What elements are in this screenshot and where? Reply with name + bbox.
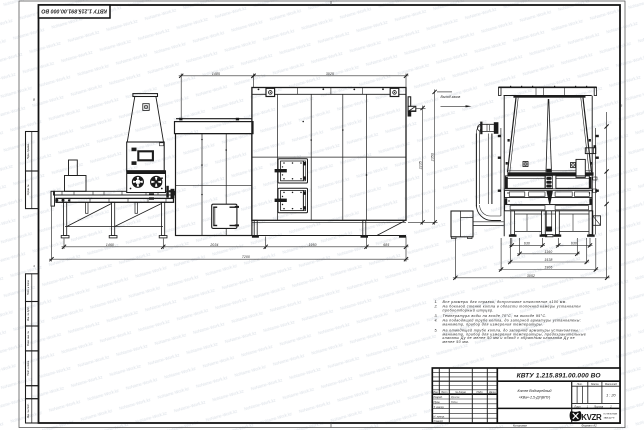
svg-text:пробоотборный штуцер.: пробоотборный штуцер. <box>443 308 494 312</box>
svg-text:7200: 7200 <box>242 255 250 259</box>
svg-text:Котел Водогрейный: Котел Водогрейный <box>518 389 552 393</box>
svg-text:Лит.: Лит. <box>576 383 583 386</box>
svg-text:1 : 20: 1 : 20 <box>606 393 616 397</box>
svg-text:ЗАВОД РФ: ЗАВОД РФ <box>604 416 615 419</box>
svg-text:Лист: Лист <box>440 391 447 394</box>
svg-text:Выход газов: Выход газов <box>441 95 461 99</box>
svg-text:3052: 3052 <box>527 274 535 278</box>
svg-text:КВТУ 1.215.891.00.000 ВО: КВТУ 1.215.891.00.000 ВО <box>517 373 602 380</box>
svg-text:1460: 1460 <box>106 243 114 247</box>
svg-text:4: 4 <box>33 264 35 268</box>
svg-text:Н. контр.: Н. контр. <box>434 415 446 418</box>
svg-text:Инв. № подл.: Инв. № подл. <box>27 403 30 418</box>
svg-text:1160: 1160 <box>544 250 552 254</box>
svg-text:Масштаб: Масштаб <box>605 383 617 386</box>
svg-text:«КВа»-2,5-ДУ(ВПУ): «КВа»-2,5-ДУ(ВПУ) <box>519 396 551 400</box>
svg-text:2: 2 <box>609 405 612 408</box>
svg-text:Юдин: Юдин <box>451 401 458 404</box>
svg-text:2034: 2034 <box>209 243 218 247</box>
svg-text:630: 630 <box>571 241 577 245</box>
svg-text:Инв. № дубл.: Инв. № дубл. <box>27 306 30 321</box>
svg-text:менее 50 мм.: менее 50 мм. <box>443 340 470 344</box>
svg-text:Пров.: Пров. <box>434 401 441 404</box>
svg-text:манометр, прибор для измерения: манометр, прибор для измерения температу… <box>443 322 544 326</box>
svg-text:685: 685 <box>383 243 389 247</box>
svg-text:КОТЕЛЬНЫЙ: КОТЕЛЬНЫЙ <box>604 413 618 416</box>
svg-text:Масса: Масса <box>591 383 599 386</box>
svg-text:Фролов: Фролов <box>451 396 460 399</box>
svg-text:Разраб.: Разраб. <box>434 396 443 399</box>
svg-text:Утверд.: Утверд. <box>434 420 444 423</box>
svg-text:5.: 5. <box>435 328 438 332</box>
svg-text:Подп. и дата: Подп. и дата <box>27 360 30 376</box>
svg-text:2235: 2235 <box>419 161 423 170</box>
svg-text:1906: 1906 <box>544 266 552 270</box>
svg-text:3025: 3025 <box>326 72 334 76</box>
svg-text:1485: 1485 <box>212 72 220 76</box>
svg-text:Перв. примен.: Перв. примен. <box>27 143 30 159</box>
svg-text:Подп.: Подп. <box>476 391 483 394</box>
svg-text:KVZR: KVZR <box>581 413 602 422</box>
svg-text:Лист: Лист <box>573 405 580 408</box>
svg-text:630: 630 <box>524 241 530 245</box>
svg-text:Взам. инв. №: Взам. инв. № <box>27 331 30 346</box>
svg-text:1538: 1538 <box>544 258 552 262</box>
svg-text:2.: 2. <box>434 304 438 308</box>
svg-text:Справ. №: Справ. № <box>27 184 30 195</box>
svg-text:2350: 2350 <box>431 153 435 162</box>
svg-text:КВТУ 1.215.891.00.000 ВО: КВТУ 1.215.891.00.000 ВО <box>41 7 107 13</box>
svg-text:Изм.: Изм. <box>433 391 439 394</box>
svg-text:№ докум.: № докум. <box>455 391 466 394</box>
svg-text:1: 1 <box>587 405 589 408</box>
svg-text:В: В <box>33 98 35 102</box>
svg-text:Формат А2: Формат А2 <box>581 424 597 428</box>
svg-text:4.: 4. <box>435 318 438 322</box>
svg-text:Подп. и дата: Подп. и дата <box>27 279 30 295</box>
svg-text:1950: 1950 <box>308 243 316 247</box>
svg-text:Дата: Дата <box>488 391 496 394</box>
svg-text:Копировал: Копировал <box>513 424 527 428</box>
svg-text:Б: Б <box>621 105 623 108</box>
svg-text:Т. контр.: Т. контр. <box>434 406 445 409</box>
svg-text:Листов: Листов <box>593 405 604 408</box>
